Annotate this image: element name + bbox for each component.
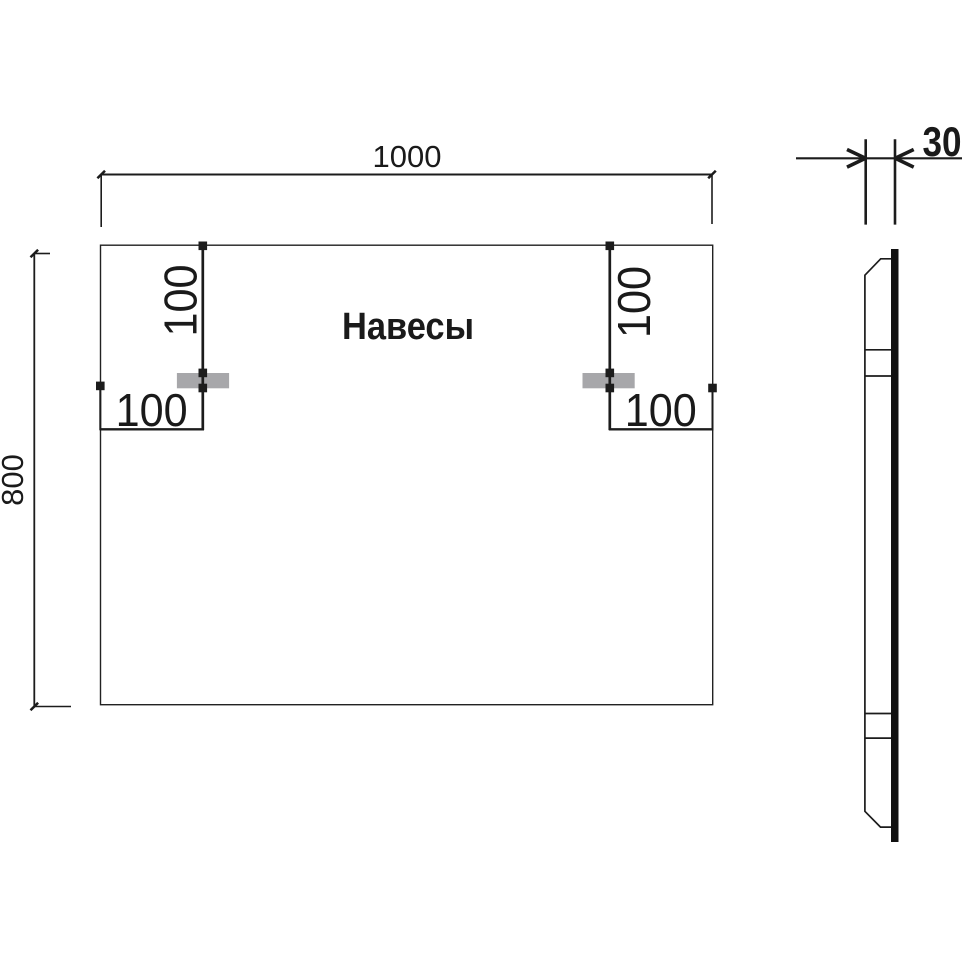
svg-text:100: 100: [625, 384, 697, 436]
svg-text:800: 800: [0, 454, 30, 506]
svg-text:100: 100: [608, 266, 660, 338]
svg-text:1000: 1000: [373, 139, 442, 174]
svg-text:30: 30: [923, 118, 962, 165]
svg-text:Навесы: Навесы: [342, 306, 474, 348]
svg-text:100: 100: [116, 384, 188, 436]
svg-text:100: 100: [155, 265, 207, 337]
